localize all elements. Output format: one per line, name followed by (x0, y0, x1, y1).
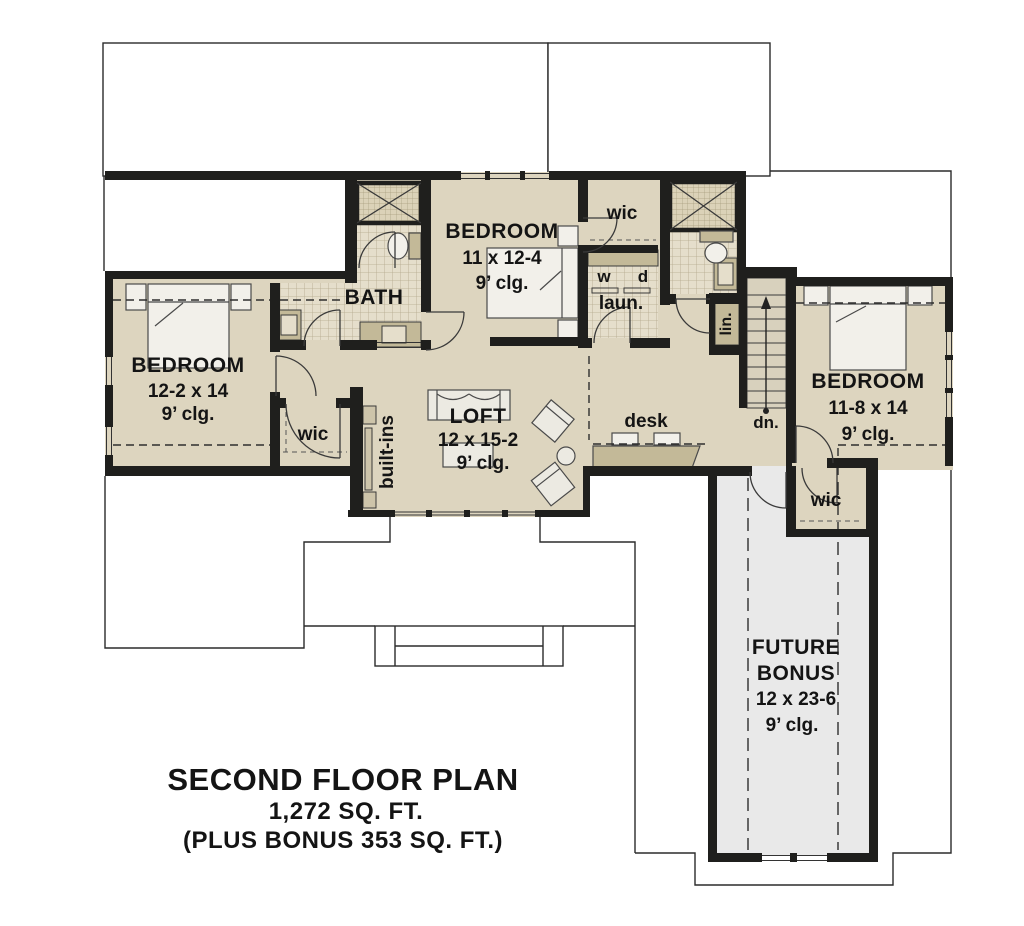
bonus-dims: 12 x 23-6 (756, 689, 836, 710)
bedroom-middle-label: BEDROOM (445, 220, 558, 243)
sink-icon (718, 263, 733, 285)
wic-left-label: wic (297, 424, 329, 445)
floor-plan-drawing: BEDROOM 12-2 x 14 9’ clg. BATH BEDROOM 1… (0, 0, 1024, 926)
desk-label: desk (624, 411, 668, 432)
bedroom-middle-ceiling: 9’ clg. (476, 273, 529, 294)
sink-icon (382, 326, 406, 343)
wic-right-label: wic (810, 490, 842, 511)
bonus-ceiling: 9’ clg. (766, 715, 819, 736)
desk-chair-icon (654, 433, 680, 445)
plan-title: SECOND FLOOR PLAN (167, 762, 518, 797)
built-ins-label: built-ins (377, 415, 398, 489)
desk-chair-icon (612, 433, 638, 445)
built-in-cabinet (363, 492, 376, 508)
bedroom-left-dims: 12-2 x 14 (148, 381, 229, 402)
linen-label: lin. (718, 312, 735, 335)
laundry-label: laun. (599, 293, 643, 314)
plan-bonus-area: (PLUS BONUS 353 SQ. FT.) (183, 827, 503, 854)
nightstand-icon (804, 286, 828, 305)
bedroom-left-label: BEDROOM (131, 354, 244, 377)
washer-label: w (596, 267, 611, 286)
bonus-label-2: BONUS (757, 662, 835, 685)
nightstand-icon (558, 226, 578, 246)
bedroom-right-ceiling: 9’ clg. (842, 424, 895, 445)
floor-plan-page: BEDROOM 12-2 x 14 9’ clg. BATH BEDROOM 1… (0, 0, 1024, 926)
bedroom-left-ceiling: 9’ clg. (162, 404, 215, 425)
toilet-icon (388, 233, 421, 259)
sink-icon (281, 315, 297, 335)
bath-label: BATH (345, 286, 404, 309)
bedroom-right-label: BEDROOM (811, 370, 924, 393)
shower-stall-icon (670, 182, 737, 230)
shower-stall-icon (357, 183, 421, 223)
plan-area: 1,272 SQ. FT. (269, 798, 424, 825)
desk-counter (593, 446, 700, 468)
nightstand-icon (908, 286, 932, 305)
built-in-cabinet (363, 406, 376, 424)
dryer-label: d (638, 267, 648, 286)
loft-ceiling: 9’ clg. (457, 453, 510, 474)
wic-middle-label: wic (606, 203, 638, 224)
stairs-down-label: dn. (753, 413, 779, 432)
loft-dims: 12 x 15-2 (438, 430, 518, 451)
staircase (747, 278, 786, 414)
bedroom-right-dims: 11-8 x 14 (828, 398, 908, 419)
bedroom-middle-dims: 11 x 12-4 (462, 248, 542, 269)
side-table-icon (557, 447, 575, 465)
loft-label: LOFT (450, 405, 507, 428)
built-in-shelf (365, 428, 372, 490)
nightstand-icon (231, 284, 251, 310)
bonus-label-1: FUTURE (752, 636, 840, 659)
nightstand-icon (126, 284, 146, 310)
